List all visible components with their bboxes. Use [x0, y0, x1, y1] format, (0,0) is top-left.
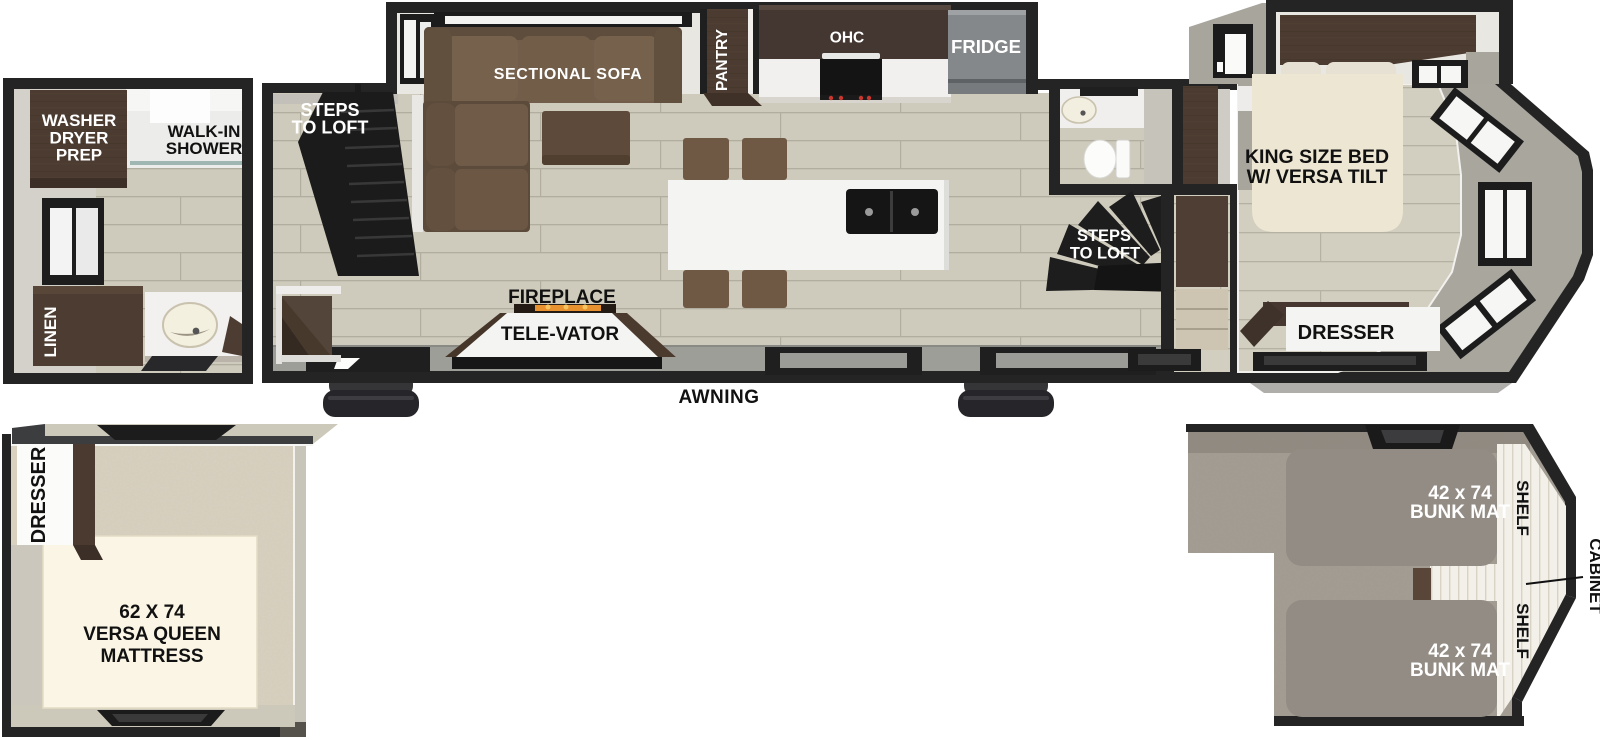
svg-text:KING SIZE BED: KING SIZE BED: [1245, 146, 1389, 168]
svg-text:SHELF: SHELF: [1513, 480, 1532, 536]
svg-text:TO LOFT: TO LOFT: [1070, 245, 1140, 263]
svg-text:BUNK MAT: BUNK MAT: [1410, 502, 1510, 523]
svg-text:STEPS: STEPS: [1077, 227, 1131, 245]
svg-text:OHC: OHC: [830, 30, 864, 47]
svg-text:VERSA QUEEN: VERSA QUEEN: [83, 624, 221, 645]
svg-text:LINEN: LINEN: [41, 307, 60, 358]
svg-text:DRESSER: DRESSER: [1298, 322, 1395, 344]
svg-text:MATTRESS: MATTRESS: [100, 646, 203, 667]
svg-text:42 x 74: 42 x 74: [1428, 641, 1492, 662]
svg-text:AWNING: AWNING: [678, 387, 759, 408]
svg-text:WASHER: WASHER: [42, 111, 117, 130]
svg-text:DRESSER: DRESSER: [28, 446, 50, 543]
svg-text:CABINET: CABINET: [1586, 538, 1600, 614]
svg-text:62 X 74: 62 X 74: [119, 602, 185, 623]
svg-text:PREP: PREP: [56, 146, 102, 165]
svg-text:BUNK MAT: BUNK MAT: [1410, 660, 1510, 681]
svg-text:TO LOFT: TO LOFT: [292, 118, 369, 138]
svg-text:SHELF: SHELF: [1513, 603, 1532, 659]
svg-text:SHOWER: SHOWER: [166, 139, 243, 158]
svg-text:PANTRY: PANTRY: [714, 28, 731, 91]
svg-text:42 x 74: 42 x 74: [1428, 483, 1492, 504]
svg-text:W/ VERSA TILT: W/ VERSA TILT: [1247, 166, 1388, 188]
svg-text:SECTIONAL SOFA: SECTIONAL SOFA: [494, 66, 643, 83]
svg-text:TELE-VATOR: TELE-VATOR: [501, 324, 620, 345]
svg-text:FRIDGE: FRIDGE: [951, 36, 1021, 57]
